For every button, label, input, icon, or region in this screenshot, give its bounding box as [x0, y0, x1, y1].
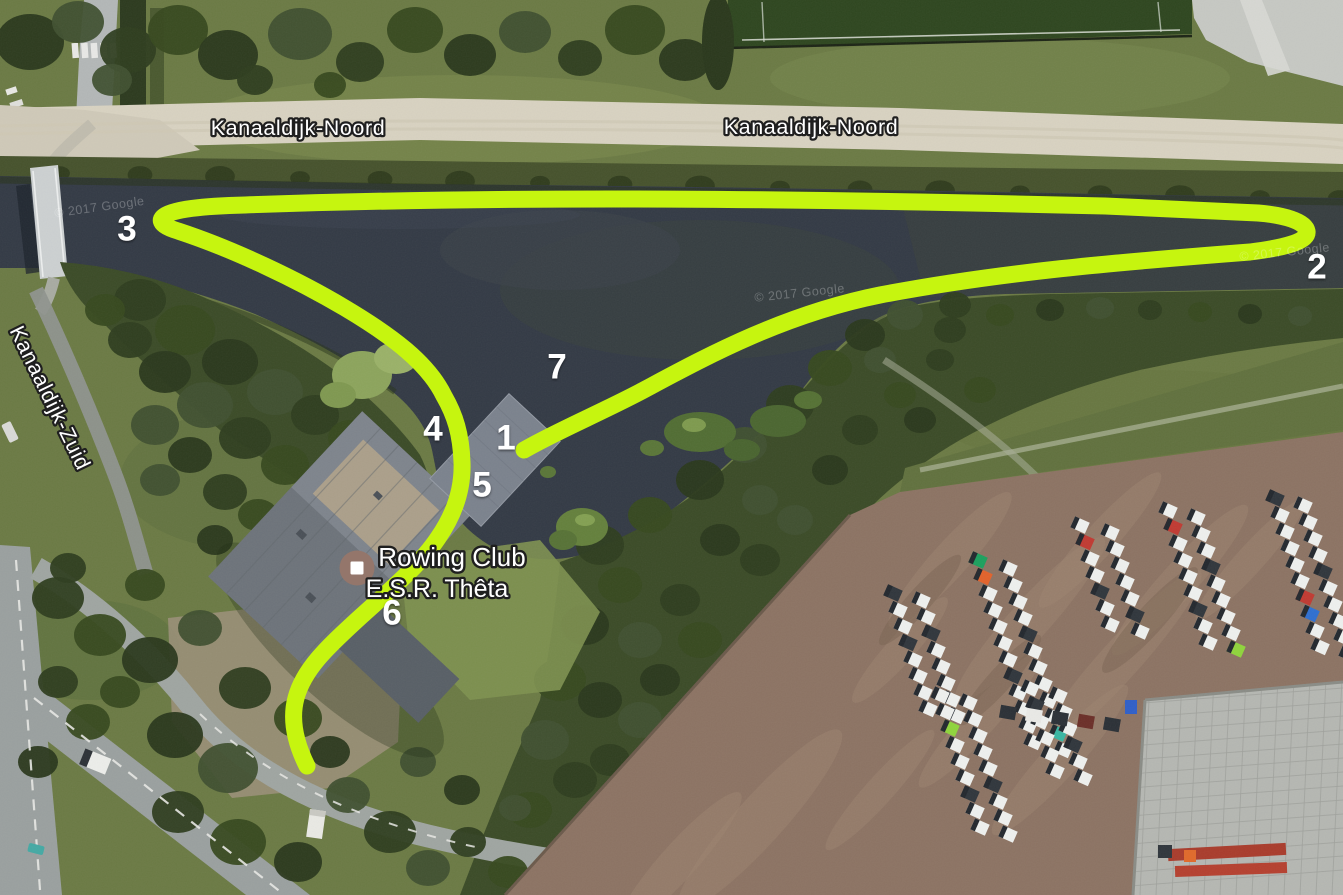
photo-grain — [0, 0, 1343, 895]
waypoint-4: 4 — [423, 410, 443, 449]
waypoint-5: 5 — [472, 466, 491, 505]
street-label: Kanaaldijk-Noord — [211, 116, 386, 140]
waypoint-6: 6 — [382, 594, 401, 633]
poi-marker-glyph — [351, 562, 364, 575]
satellite-map[interactable]: © 2017 Google© 2017 Google© 2017 Google … — [0, 0, 1343, 895]
street-label: Kanaaldijk-Noord — [724, 115, 899, 139]
waypoint-1: 1 — [496, 419, 515, 458]
poi-name-line1: Rowing Club — [378, 542, 525, 572]
waypoint-7: 7 — [547, 348, 566, 387]
map-viewport[interactable]: © 2017 Google© 2017 Google© 2017 Google … — [0, 0, 1343, 895]
waypoint-2: 2 — [1307, 248, 1326, 287]
waypoint-3: 3 — [117, 210, 136, 249]
